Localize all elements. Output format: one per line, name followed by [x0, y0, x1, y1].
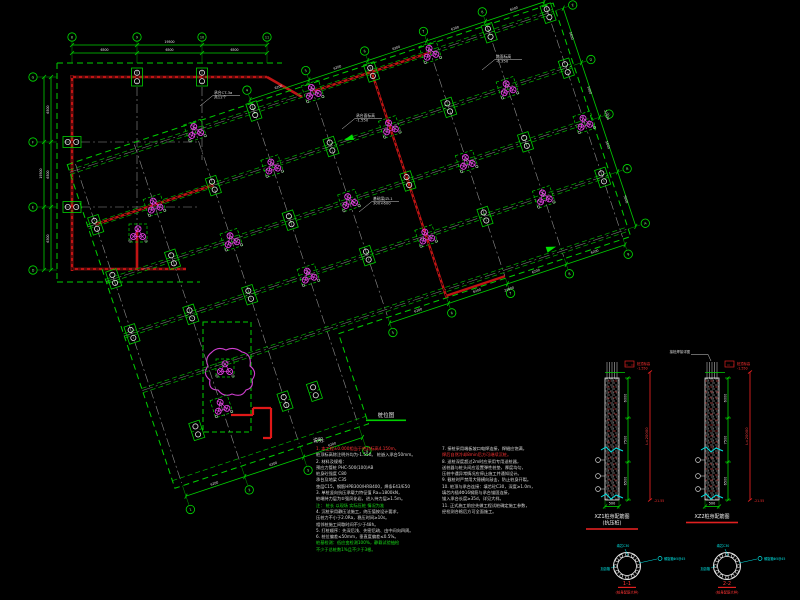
dim-text: 6300: [46, 234, 50, 242]
dim-text: 6000: [623, 394, 627, 403]
grid-bubble-label: 4: [245, 88, 248, 92]
dim-text: 螺旋箍Φ5@45: [664, 556, 685, 561]
dim-text: -21.55: [754, 499, 764, 503]
dim-text: 6500: [46, 170, 50, 178]
section-label: 1-1: [623, 581, 631, 587]
dim-text: 6500: [46, 105, 50, 113]
dim-text: 接桩焊接详图: [670, 349, 691, 354]
dim-text: 6500: [165, 48, 173, 52]
dim-text: 5600: [604, 140, 610, 149]
dim-text: -1.550: [737, 367, 748, 371]
grid-bubble-label: 2: [248, 488, 251, 492]
plan-title-underline: [366, 420, 406, 422]
cad-drawing-stage: 桩位图 89101165006500650019500GFED650065006…: [0, 0, 800, 600]
dim-text: 500: [609, 502, 615, 506]
grid-bubble-label: 9: [627, 252, 630, 256]
dim-text: L=20000: [644, 427, 649, 445]
ortho-block: 89101165006500650019500GFED6500650063001…: [29, 33, 302, 282]
dim-text: 22400: [603, 109, 610, 120]
grid-bubble-label: 8: [568, 272, 571, 276]
dim-text: -1.550: [637, 367, 648, 371]
pile-elevation-detail: 600075006500L=20000桩顶标高-1.550-21.55500XZ…: [586, 361, 664, 530]
dim-text: 5600: [586, 86, 592, 95]
note-line: 不少于总桩数1%且不少于3根。: [316, 547, 440, 553]
grid-bubble-label: 5: [391, 331, 394, 335]
notes-title: 说明:: [313, 437, 567, 444]
grid-bubble-label: E: [571, 3, 574, 7]
dim-text: 6000: [723, 394, 727, 403]
grid-bubble-label: 7: [509, 291, 512, 295]
general-notes-block: 说明: 1. 本工程±0.000相当于绝对标高4.150m， 桩顶标高除注明外均…: [313, 437, 567, 445]
grid-bubble-label: 8: [481, 10, 484, 14]
grid-bubble-label: 10: [200, 35, 204, 39]
dim-text: L=20000: [744, 427, 749, 445]
grid-bubble-label: F: [32, 140, 34, 144]
dim-text: 6500: [230, 48, 238, 52]
dim-text: 7500: [723, 436, 727, 445]
grid-bubble-label: G: [32, 75, 35, 79]
dim-text: 19300: [39, 168, 43, 178]
dim-text: 加劲箍: [700, 566, 710, 571]
dim-text: 桩顶标高: [737, 361, 751, 366]
dim-text: 桩顶标高: [637, 361, 651, 366]
grid-bubble-label: 6: [363, 49, 366, 53]
dim-text: 6500: [723, 477, 727, 486]
note-line: 经检测合格后方可全面施工。: [442, 509, 566, 515]
notes-right-column: 7. 接桩采用端板坡口电焊连接，焊缝应饱满， 焊后自然冷却8min后方可继续沉桩…: [442, 446, 566, 515]
grid-bubble-label: 1: [189, 508, 192, 512]
dim-text: 加劲箍: [600, 566, 610, 571]
dim-text: -21.55: [654, 499, 664, 503]
notes-left-column: 1. 本工程±0.000相当于绝对标高4.150m， 桩顶标高除注明外均为-1.…: [316, 446, 440, 553]
dim-text: 7500: [623, 436, 627, 445]
dim-text: 5600: [568, 31, 574, 40]
grid-bubble-label: B: [626, 166, 630, 171]
grid-bubble-label: 6: [450, 311, 453, 315]
pile-elevation-detail: 600075006500L=20000桩顶标高-1.550-21.55500XZ…: [670, 349, 765, 523]
pile-cross-section: 加劲箍螺旋箍Φ5@45填芯C302-2(桩身配筋大样): [700, 543, 785, 594]
detail-title: (抗压桩): [603, 520, 622, 527]
grid-bubble-label: A: [644, 221, 648, 226]
dim-text: 填芯C30: [617, 543, 630, 548]
grid-bubble-label: D: [589, 57, 593, 62]
dim-text: 6500: [623, 477, 627, 486]
dim-text: (桩身配筋大样): [716, 589, 740, 594]
grid-bubble-label: E: [32, 205, 34, 209]
dim-text: 6500: [100, 48, 108, 52]
pile-cross-section: 加劲箍螺旋箍Φ5@45填芯C301-1(桩身配筋大样): [600, 543, 685, 594]
grid-bubble-label: 8: [71, 35, 73, 39]
detail-title: XZ1桩身配筋图: [594, 513, 629, 520]
section-label: 2-2: [723, 581, 731, 587]
dim-text: 填芯C30: [717, 543, 730, 548]
dim-text: (桩身配筋大样): [616, 589, 640, 594]
plan-title: 桩位图: [378, 411, 395, 419]
dim-text: 5600: [623, 195, 629, 204]
grid-bubble-label: 7: [422, 30, 425, 34]
detail-title: XZ2桩身配筋图: [694, 513, 729, 520]
dim-text: 19500: [164, 40, 174, 44]
dim-text: 螺旋箍Φ5@45: [764, 556, 785, 561]
grid-bubble-label: D: [32, 268, 35, 272]
grid-bubble-label: 11: [265, 35, 269, 39]
grid-bubble-label: 9: [136, 35, 138, 39]
dim-text: 500: [709, 502, 715, 506]
grid-bubble-label: 3: [306, 468, 309, 472]
grid-bubble-label: 5: [304, 69, 307, 73]
